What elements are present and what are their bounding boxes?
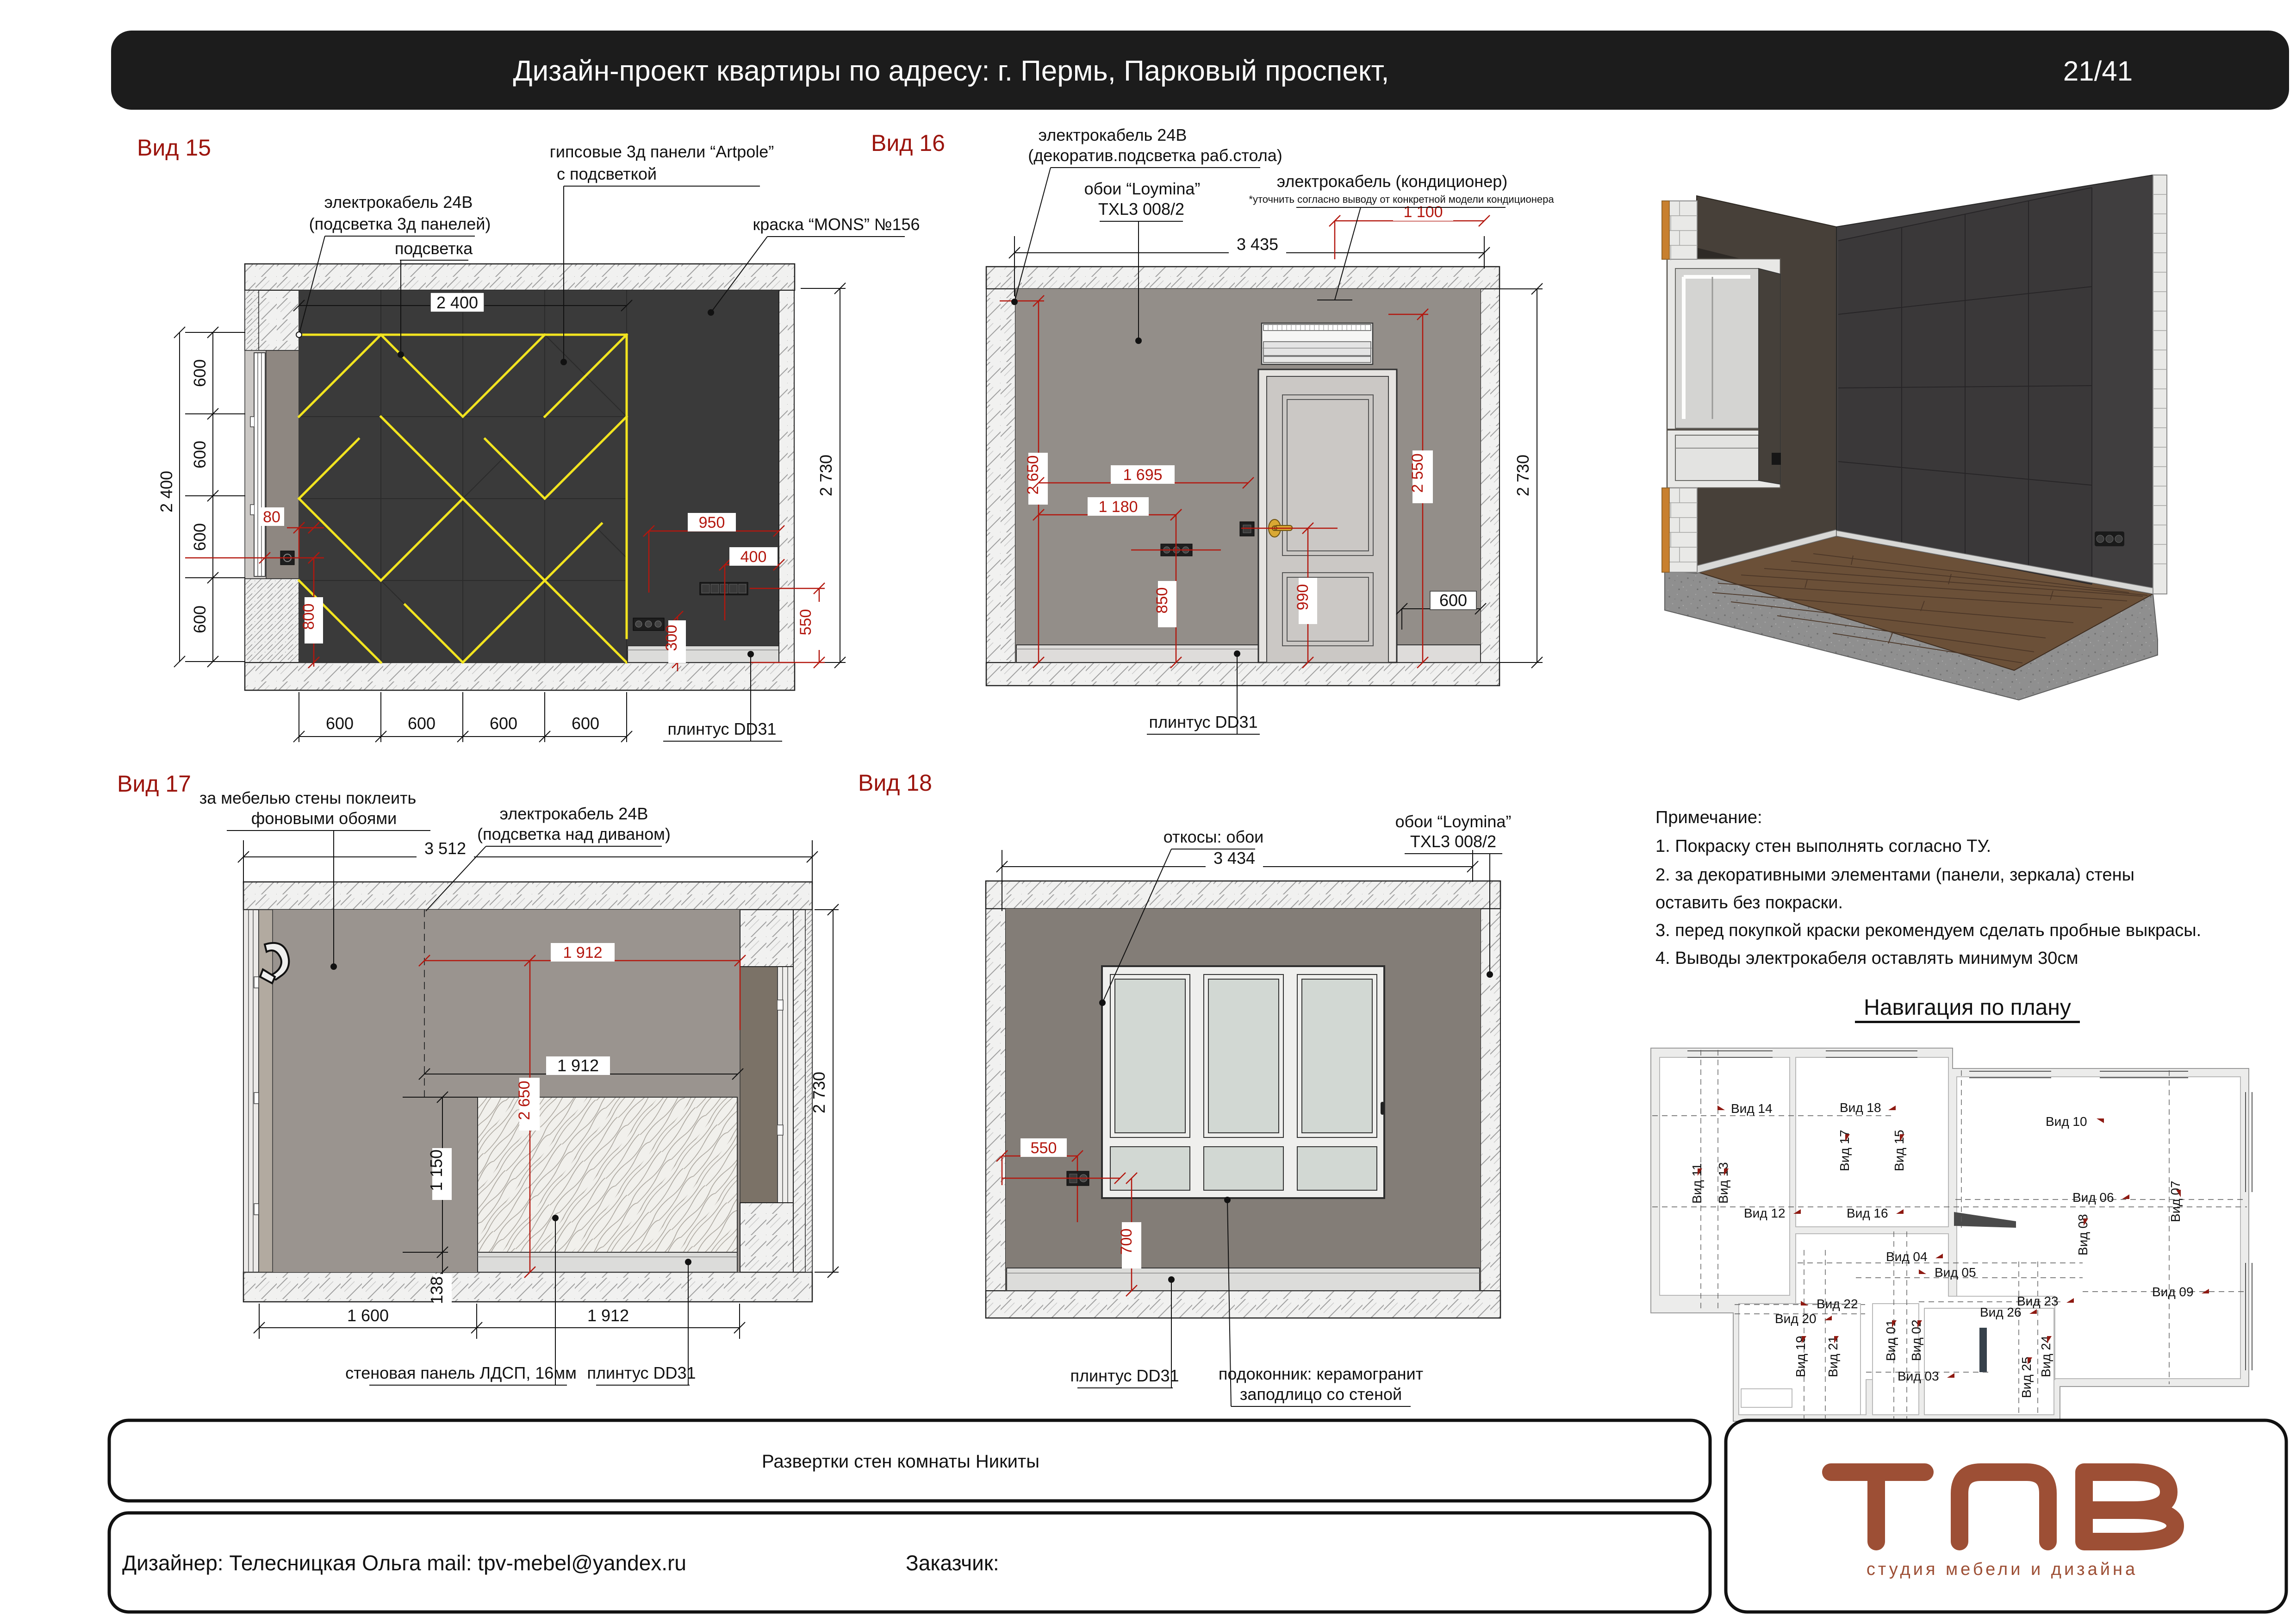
svg-text:Вид 16: Вид 16 bbox=[1847, 1206, 1888, 1220]
svg-text:Вид 06: Вид 06 bbox=[2072, 1190, 2114, 1205]
svg-text:электрокабель (кондиционер): электрокабель (кондиционер) bbox=[1277, 172, 1507, 191]
svg-text:электрокабель 24В: электрокабель 24В bbox=[1039, 125, 1187, 144]
svg-text:600: 600 bbox=[190, 441, 209, 468]
svg-text:краска “MONS” №156: краска “MONS” №156 bbox=[753, 215, 920, 234]
svg-text:600: 600 bbox=[408, 714, 436, 733]
svg-text:Вид 25: Вид 25 bbox=[2019, 1356, 2034, 1398]
svg-text:заподлицо со стеной: заподлицо со стеной bbox=[1240, 1385, 1402, 1404]
svg-text:Вид 18: Вид 18 bbox=[1840, 1100, 1881, 1115]
svg-text:за мебелью стены поклеить: за мебелью стены поклеить bbox=[199, 788, 417, 807]
svg-text:600: 600 bbox=[190, 359, 209, 387]
svg-text:с подсветкой: с подсветкой bbox=[557, 164, 657, 183]
svg-text:600: 600 bbox=[326, 714, 354, 733]
svg-text:Заказчик:: Заказчик: bbox=[906, 1551, 999, 1575]
svg-text:3 435: 3 435 bbox=[1237, 235, 1278, 254]
svg-text:2 650: 2 650 bbox=[516, 1081, 533, 1120]
svg-text:1 912: 1 912 bbox=[587, 1306, 629, 1325]
svg-text:600: 600 bbox=[572, 714, 599, 733]
svg-text:Вид 16: Вид 16 bbox=[871, 130, 945, 156]
svg-text:плинтус DD31: плинтус DD31 bbox=[667, 719, 776, 738]
svg-text:550: 550 bbox=[1031, 1139, 1057, 1157]
svg-text:*уточнить согласно выводу от к: *уточнить согласно выводу от конкретной … bbox=[1249, 194, 1554, 205]
svg-text:Примечание:: Примечание: bbox=[1655, 808, 1762, 827]
svg-text:электрокабель 24В: электрокабель 24В bbox=[324, 193, 473, 212]
svg-text:Вид 01: Вид 01 bbox=[1884, 1319, 1898, 1361]
svg-text:Вид 13: Вид 13 bbox=[1716, 1162, 1730, 1204]
svg-text:Вид 08: Вид 08 bbox=[2076, 1214, 2090, 1255]
svg-text:1 912: 1 912 bbox=[557, 1056, 599, 1075]
svg-text:1 100: 1 100 bbox=[1403, 203, 1443, 221]
svg-text:Вид 15: Вид 15 bbox=[1892, 1130, 1906, 1171]
svg-text:обои “Loymina”: обои “Loymina” bbox=[1395, 812, 1512, 831]
svg-text:Вид 14: Вид 14 bbox=[1731, 1101, 1773, 1116]
svg-text:подсветка: подсветка bbox=[395, 239, 473, 258]
svg-text:80: 80 bbox=[263, 508, 280, 526]
svg-text:Дизайн-проект квартиры по адре: Дизайн-проект квартиры по адресу: г. Пер… bbox=[513, 55, 1389, 87]
svg-text:откосы: обои: откосы: обои bbox=[1164, 827, 1264, 846]
svg-text:1 150: 1 150 bbox=[427, 1149, 446, 1191]
svg-text:плинтус DD31: плинтус DD31 bbox=[587, 1363, 696, 1382]
svg-text:21/41: 21/41 bbox=[2063, 56, 2133, 87]
svg-text:Вид 22: Вид 22 bbox=[1817, 1297, 1858, 1311]
svg-text:Вид 17: Вид 17 bbox=[1837, 1130, 1852, 1171]
svg-text:600: 600 bbox=[190, 606, 209, 633]
svg-text:TXL3 008/2: TXL3 008/2 bbox=[1098, 200, 1184, 219]
svg-text:2 730: 2 730 bbox=[816, 455, 835, 496]
svg-text:Вид 21: Вид 21 bbox=[1826, 1336, 1840, 1377]
svg-text:2 400: 2 400 bbox=[157, 471, 176, 512]
svg-text:950: 950 bbox=[699, 514, 725, 531]
svg-text:Вид 23: Вид 23 bbox=[2017, 1294, 2059, 1308]
svg-text:Вид 09: Вид 09 bbox=[2152, 1285, 2194, 1299]
svg-text:Дизайнер: Телесницкая Ольга ma: Дизайнер: Телесницкая Ольга mail: tpv-me… bbox=[122, 1551, 686, 1575]
svg-text:Вид 07: Вид 07 bbox=[2168, 1181, 2183, 1222]
svg-text:студия мебели и дизайна: студия мебели и дизайна bbox=[1867, 1560, 2138, 1579]
svg-text:(подсветка над диваном): (подсветка над диваном) bbox=[477, 824, 671, 843]
svg-text:2 730: 2 730 bbox=[1513, 455, 1532, 496]
svg-text:Вид 04: Вид 04 bbox=[1886, 1249, 1928, 1264]
svg-text:Вид 24: Вид 24 bbox=[2039, 1336, 2053, 1377]
svg-text:4. Выводы электрокабеля оставл: 4. Выводы электрокабеля оставлять миниму… bbox=[1655, 949, 2078, 968]
svg-text:1. Покраску стен выполнять сог: 1. Покраску стен выполнять согласно ТУ. bbox=[1655, 837, 1991, 856]
svg-text:3 512: 3 512 bbox=[424, 839, 466, 858]
svg-text:Вид 11: Вид 11 bbox=[1690, 1163, 1704, 1204]
svg-text:800: 800 bbox=[300, 604, 317, 630]
svg-text:2 650: 2 650 bbox=[1024, 455, 1042, 494]
svg-text:Вид 10: Вид 10 bbox=[2046, 1114, 2087, 1129]
svg-text:плинтус DD31: плинтус DD31 bbox=[1149, 712, 1257, 731]
svg-text:Вид 03: Вид 03 bbox=[1898, 1369, 1939, 1383]
svg-text:Вид 20: Вид 20 bbox=[1775, 1312, 1817, 1326]
svg-text:(подсветка 3д панелей): (подсветка 3д панелей) bbox=[309, 214, 491, 233]
svg-text:оставить без покраски.: оставить без покраски. bbox=[1655, 893, 1843, 912]
svg-text:Вид 19: Вид 19 bbox=[1793, 1336, 1808, 1377]
svg-text:фоновыми обоями: фоновыми обоями bbox=[251, 809, 397, 828]
svg-text:Вид 17: Вид 17 bbox=[117, 771, 191, 797]
svg-text:плинтус DD31: плинтус DD31 bbox=[1070, 1366, 1179, 1385]
svg-text:подоконник: керамогранит: подоконник: керамогранит bbox=[1219, 1364, 1423, 1383]
svg-text:2 400: 2 400 bbox=[436, 293, 478, 312]
svg-text:3. перед покупкой краски реком: 3. перед покупкой краски рекомендуем сде… bbox=[1655, 921, 2201, 940]
svg-text:1 600: 1 600 bbox=[347, 1306, 389, 1325]
svg-text:2 550: 2 550 bbox=[1409, 453, 1426, 493]
svg-text:1 180: 1 180 bbox=[1098, 498, 1138, 516]
svg-text:300: 300 bbox=[663, 625, 680, 651]
svg-text:TXL3 008/2: TXL3 008/2 bbox=[1410, 832, 1496, 851]
svg-text:850: 850 bbox=[1153, 587, 1171, 614]
svg-text:стеновая панель ЛДСП, 16мм: стеновая панель ЛДСП, 16мм bbox=[345, 1363, 577, 1382]
svg-text:600: 600 bbox=[1439, 591, 1467, 610]
svg-text:3 434: 3 434 bbox=[1213, 849, 1255, 868]
svg-text:электрокабель 24В: электрокабель 24В bbox=[500, 804, 648, 823]
svg-text:Вид 18: Вид 18 bbox=[858, 770, 932, 796]
svg-text:600: 600 bbox=[490, 714, 517, 733]
svg-text:Вид 05: Вид 05 bbox=[1935, 1265, 1976, 1280]
svg-text:Вид 12: Вид 12 bbox=[1744, 1206, 1786, 1220]
svg-text:гипсовые 3д панели “Artpole”: гипсовые 3д панели “Artpole” bbox=[550, 142, 774, 161]
svg-text:1 695: 1 695 bbox=[1123, 466, 1162, 484]
svg-text:2. за декоративными элементами: 2. за декоративными элементами (панели, … bbox=[1655, 865, 2134, 885]
svg-text:Вид 15: Вид 15 bbox=[137, 135, 211, 161]
svg-text:990: 990 bbox=[1294, 584, 1312, 611]
svg-text:Вид 02: Вид 02 bbox=[1909, 1319, 1923, 1361]
svg-text:Развертки стен комнаты Никиты: Развертки стен комнаты Никиты bbox=[762, 1451, 1039, 1472]
svg-text:600: 600 bbox=[190, 523, 209, 551]
svg-text:Навигация по плану: Навигация по плану bbox=[1864, 995, 2071, 1020]
svg-text:(декоратив.подсветка раб.стола: (декоратив.подсветка раб.стола) bbox=[1028, 146, 1282, 165]
svg-text:700: 700 bbox=[1118, 1229, 1135, 1255]
svg-text:138: 138 bbox=[427, 1276, 446, 1304]
svg-text:Вид 26: Вид 26 bbox=[1980, 1305, 2022, 1319]
svg-text:400: 400 bbox=[740, 548, 767, 566]
svg-text:1 912: 1 912 bbox=[563, 944, 602, 962]
svg-text:обои “Loymina”: обои “Loymina” bbox=[1084, 179, 1201, 198]
svg-text:550: 550 bbox=[797, 609, 815, 636]
svg-text:2 730: 2 730 bbox=[809, 1072, 828, 1113]
